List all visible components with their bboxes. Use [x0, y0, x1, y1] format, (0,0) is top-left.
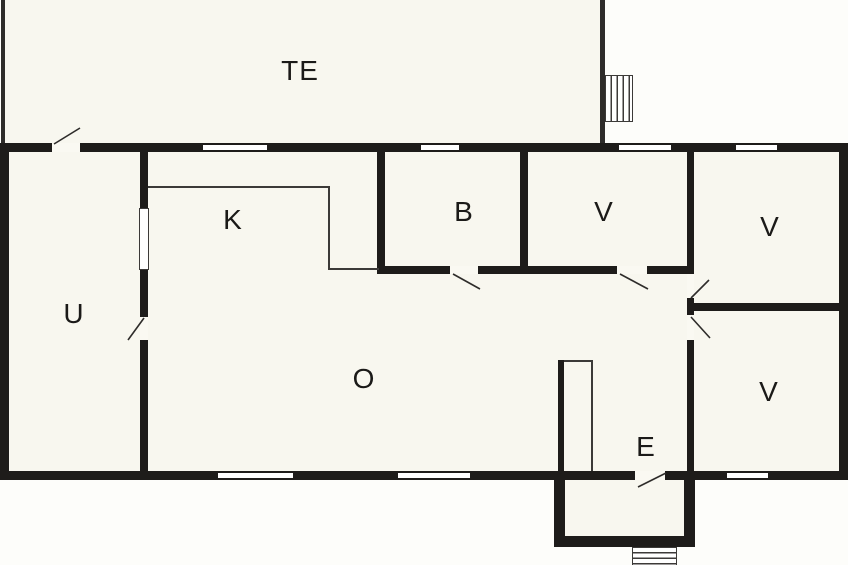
- room-label-bath: B: [454, 196, 474, 228]
- door-opening-u: [140, 317, 148, 340]
- kitchen-line-top: [148, 186, 330, 188]
- room-label-v1: V: [594, 196, 614, 228]
- window-top-3: [619, 143, 671, 152]
- entry-steps-hatch: [632, 547, 677, 565]
- window-bottom-1: [218, 471, 293, 480]
- vestibule-interior: [565, 480, 684, 536]
- wall-k-b: [377, 152, 385, 274]
- wall-u-k: [140, 152, 148, 471]
- window-top-4: [736, 143, 777, 152]
- wall-terrace-left: [1, 0, 5, 143]
- floor-plan-canvas: TE K B V V V U O E: [0, 0, 848, 565]
- window-top-2: [421, 143, 459, 152]
- windbreak-line-right: [591, 360, 593, 471]
- room-label-utility: U: [63, 298, 84, 330]
- opening-u-k-slot: [139, 208, 149, 270]
- door-opening-terrace: [52, 143, 80, 152]
- window-bottom-2: [398, 471, 470, 480]
- terrace-steps-hatch: [605, 75, 633, 122]
- window-top-1: [203, 143, 267, 152]
- door-opening-v1: [617, 266, 647, 274]
- room-label-v2: V: [760, 211, 780, 243]
- door-opening-v3: [687, 315, 694, 340]
- room-label-living: O: [353, 363, 376, 395]
- room-label-entrance: E: [636, 431, 656, 463]
- room-label-kitchen: K: [223, 204, 243, 236]
- room-label-v3: V: [759, 376, 779, 408]
- room-label-terrace: TE: [281, 55, 319, 87]
- door-opening-b: [450, 266, 478, 274]
- wall-v-v: [687, 303, 848, 311]
- wall-b-v: [520, 152, 528, 274]
- door-opening-v2: [687, 274, 694, 298]
- kitchen-line-right: [328, 186, 330, 270]
- windbreak-line-top: [564, 360, 593, 362]
- door-opening-entrance: [635, 471, 665, 480]
- window-bottom-3: [727, 471, 768, 480]
- kitchen-line-bottom: [328, 268, 379, 270]
- windbreak-wall: [558, 360, 564, 471]
- building-interior: [9, 152, 839, 471]
